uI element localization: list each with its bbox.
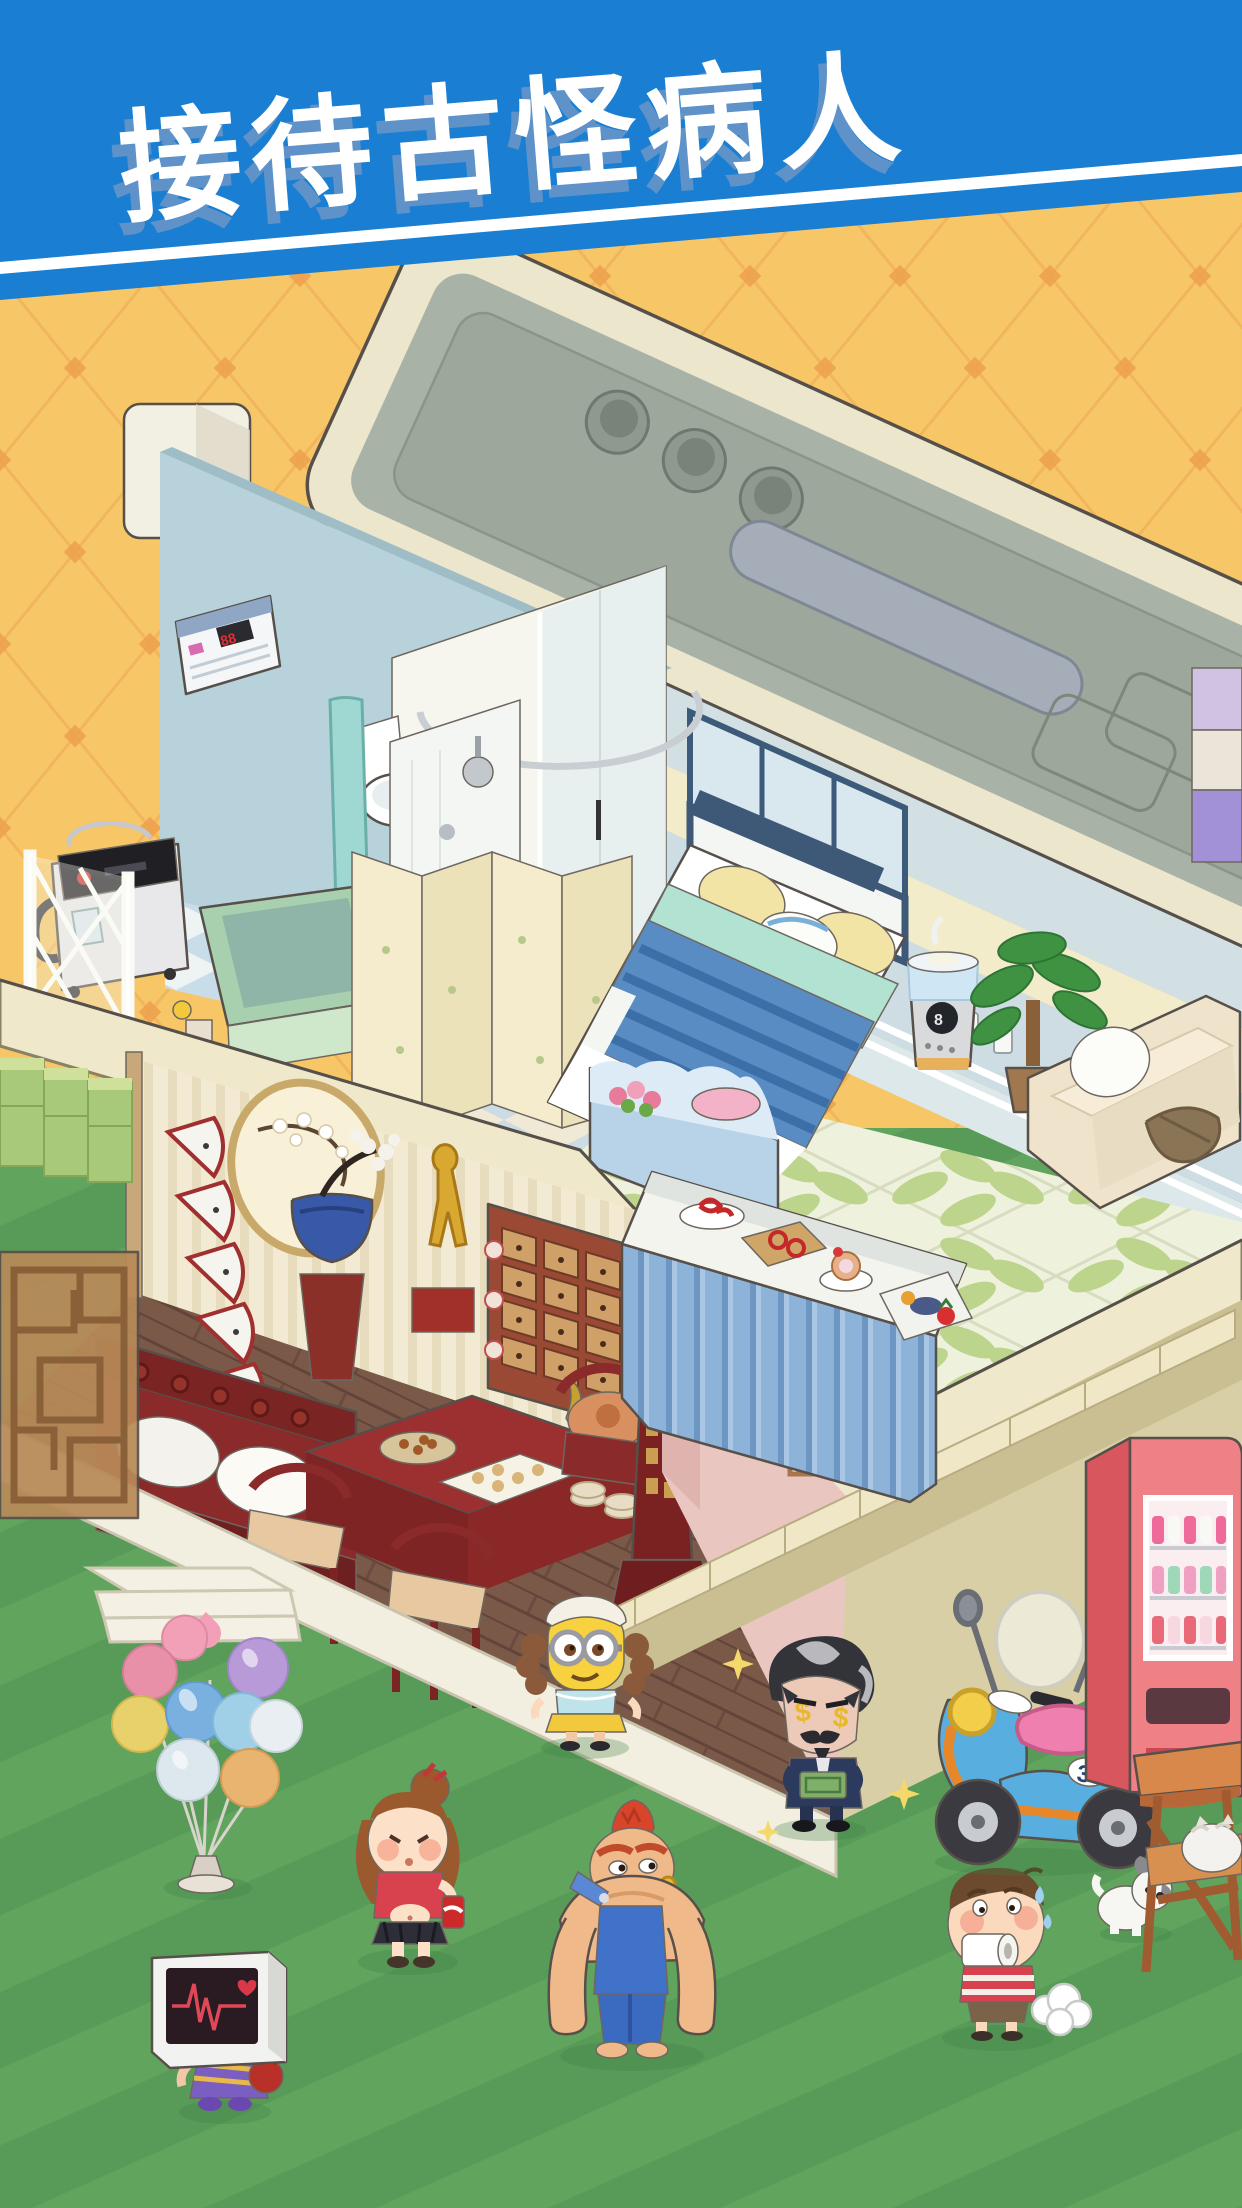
ecg-monitor-head: [152, 1952, 286, 2068]
svg-text:8: 8: [934, 1012, 943, 1029]
money-stack: [800, 1772, 846, 1798]
headlight: [950, 1690, 994, 1734]
vending-machine[interactable]: [1086, 1438, 1242, 1796]
rubber-duck: [173, 1001, 191, 1019]
toilet-paper-roll: [962, 1934, 1018, 1968]
chili-plate: [680, 1203, 744, 1229]
wooden-screen[interactable]: [0, 1252, 138, 1518]
soda-can: [442, 1896, 464, 1928]
game-screenshot: 88: [0, 0, 1242, 2208]
rooftop-purple-box[interactable]: [1192, 668, 1242, 862]
pink-towel: [692, 1088, 760, 1120]
vending-slot: [1146, 1688, 1230, 1724]
shower-head: [463, 757, 493, 787]
windshield: [996, 1592, 1084, 1688]
